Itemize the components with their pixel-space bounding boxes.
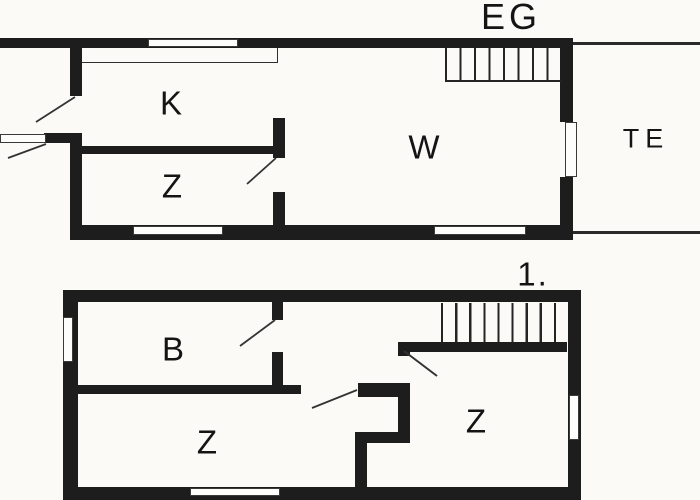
eg-left-wall-lower [70, 133, 82, 240]
f1-right-window [569, 395, 579, 440]
room-label-terrace: TE [623, 126, 670, 153]
terrace-bottom-line [573, 231, 700, 234]
eg-terrace-door [565, 122, 577, 177]
eg-bottom-window-left [133, 226, 223, 235]
f1-z2-wall-top [398, 342, 410, 356]
eg-entry-door-opening [0, 134, 46, 143]
eg-entry-inner-door-swing [36, 97, 75, 122]
f1-top-wall [63, 290, 581, 302]
f1-b-wall-lower [272, 352, 283, 394]
floor-plan: EG K Z W TE 1. B Z Z [0, 0, 700, 500]
staircase-eg [445, 48, 561, 82]
eg-kz-divider-wall [82, 146, 273, 154]
f1-hall-door-swing [312, 390, 357, 408]
f1-bottom-wall [63, 487, 581, 500]
eg-left-wall-upper [70, 46, 82, 96]
room-label-bath: B [162, 333, 184, 366]
eg-bottom-window-right [434, 226, 526, 235]
f1-understairs-wall [398, 342, 567, 352]
staircase-first-floor [441, 303, 568, 342]
f1-bz-divider-wall [78, 385, 283, 394]
room-label-living: W [408, 131, 439, 164]
eg-entry-wall [44, 133, 82, 143]
door-swing-overlay [0, 0, 700, 500]
eg-z-door-swing [247, 158, 276, 184]
room-label-kitchen: K [160, 87, 182, 120]
floor-title-eg: EG [481, 0, 541, 35]
f1-bath-door-swing [240, 320, 275, 346]
eg-top-window [148, 39, 238, 47]
f1-left-window [63, 317, 73, 362]
eg-top-wall [0, 38, 573, 48]
room-label-f1-room-right: Z [466, 405, 486, 438]
f1-z2-wall-bottom [355, 443, 367, 491]
f1-b-wall-upper [272, 300, 283, 320]
f1-bottom-window [190, 488, 280, 496]
terrace-top-line [573, 42, 700, 45]
f1-z2-jog-wall [355, 432, 410, 443]
room-label-f1-room-left: Z [197, 426, 217, 459]
eg-entry-outer-door-swing [8, 144, 46, 158]
floor-title-first: 1. [517, 258, 549, 291]
room-label-eg-room: Z [162, 170, 182, 203]
f1-hall-wall-stub [283, 385, 301, 394]
eg-zw-wall-upper [273, 118, 285, 158]
